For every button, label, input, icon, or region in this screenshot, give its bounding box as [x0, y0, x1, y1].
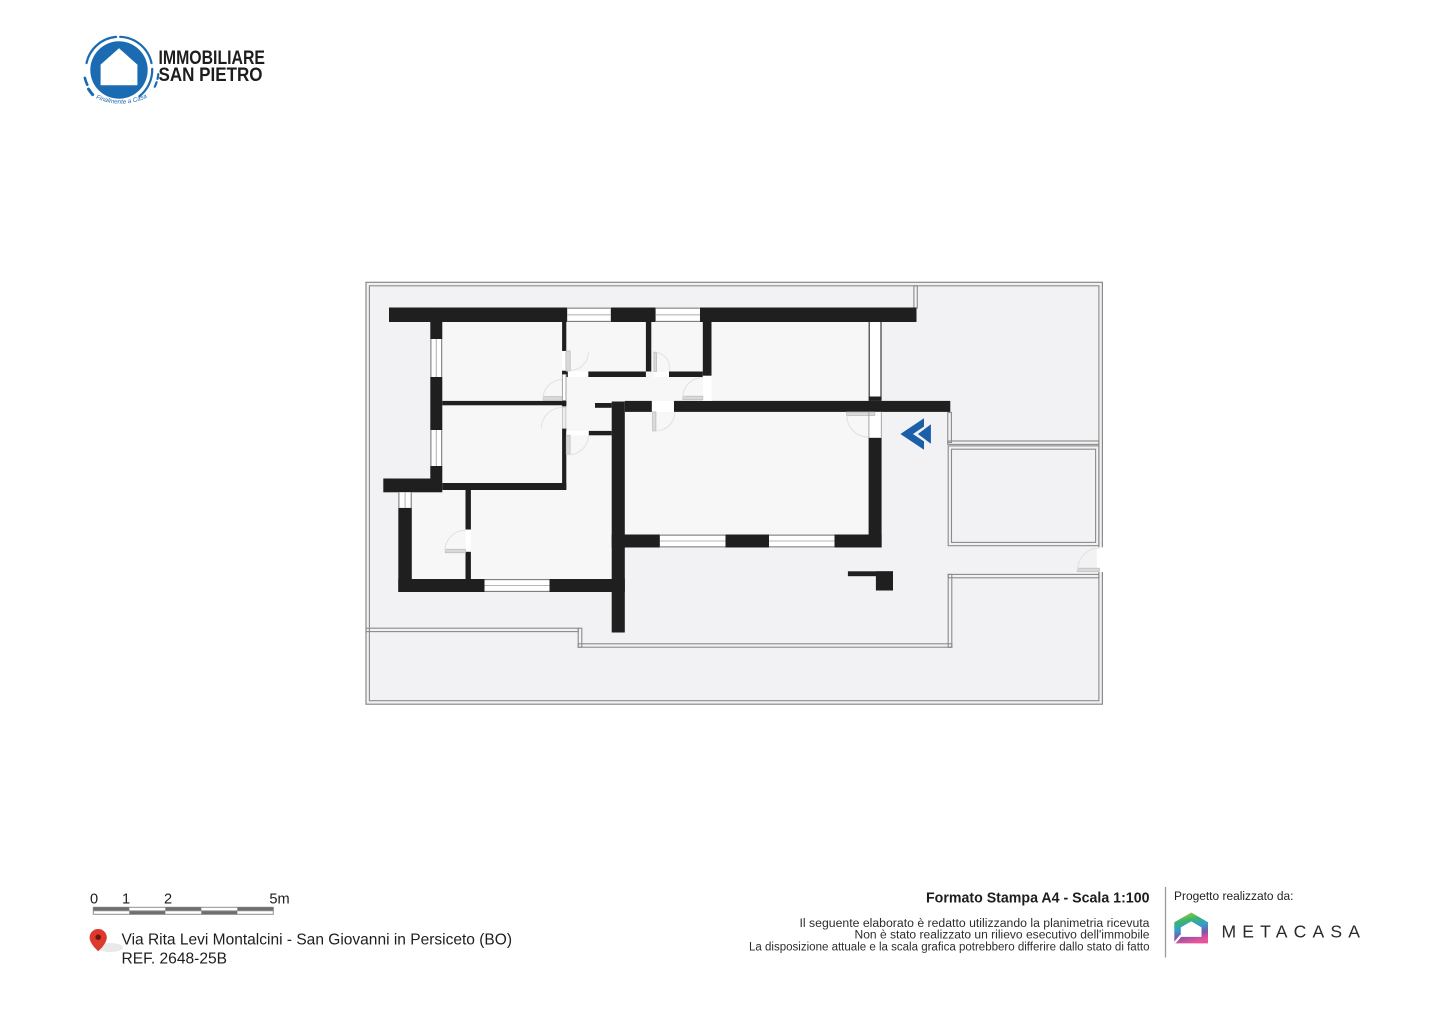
- svg-text:La disposizione attuale e la s: La disposizione attuale e la scala grafi…: [749, 941, 1150, 953]
- svg-text:5m: 5m: [269, 892, 289, 908]
- svg-text:METACASA: METACASA: [1222, 922, 1361, 942]
- svg-text:Progetto realizzato da:: Progetto realizzato da:: [1174, 889, 1294, 903]
- svg-text:Via Rita Levi Montalcini - San: Via Rita Levi Montalcini - San Giovanni …: [122, 932, 513, 949]
- svg-text:Formato Stampa A4 - Scala 1:10: Formato Stampa A4 - Scala 1:100: [926, 891, 1150, 907]
- svg-text:SAN PIETRO: SAN PIETRO: [159, 65, 263, 86]
- svg-text:Non è stato realizzato un rili: Non è stato realizzato un rilievo esecut…: [855, 930, 1150, 942]
- svg-text:Il seguente elaborato è redatt: Il seguente elaborato è redatto utilizza…: [800, 918, 1151, 930]
- svg-text:0: 0: [90, 892, 98, 908]
- svg-text:1: 1: [122, 892, 130, 908]
- svg-text:REF. 2648-25B: REF. 2648-25B: [122, 951, 228, 968]
- svg-text:2: 2: [164, 892, 172, 908]
